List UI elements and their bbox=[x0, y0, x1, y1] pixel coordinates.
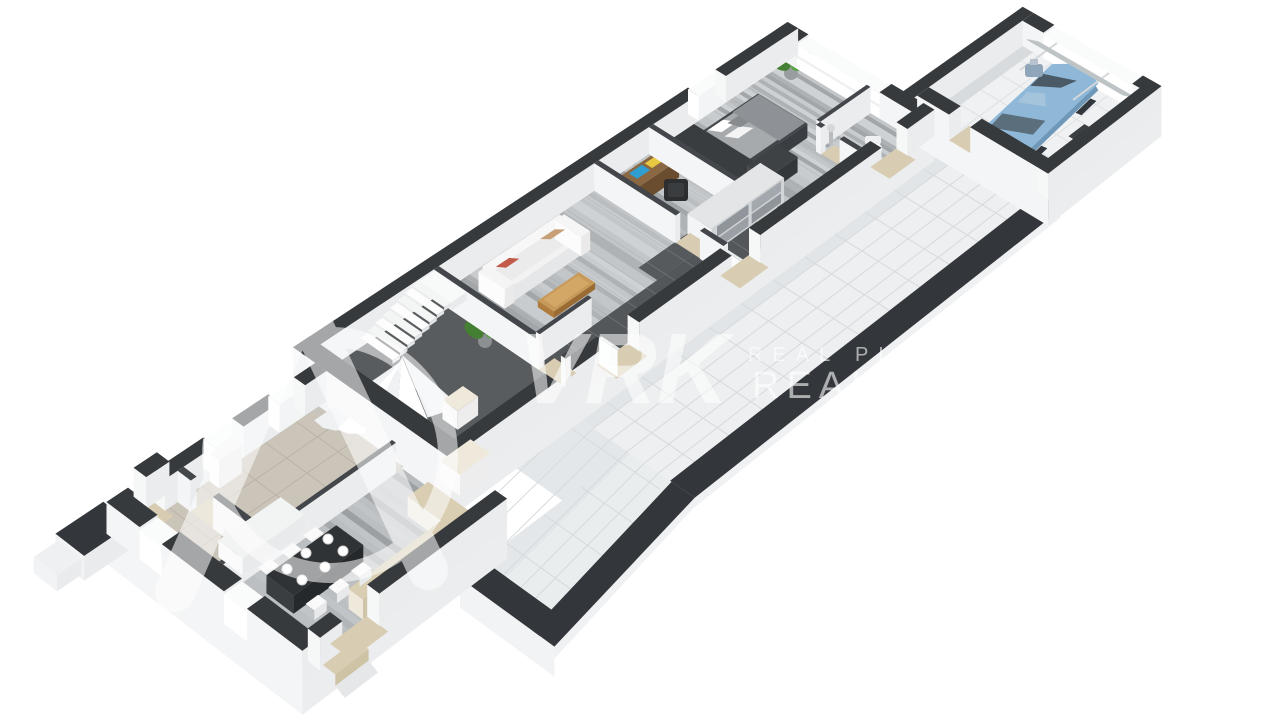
svg-text:REAL PLUS: REAL PLUS bbox=[748, 344, 947, 366]
svg-text:VRK: VRK bbox=[518, 313, 736, 425]
svg-text:REALITY: REALITY bbox=[752, 365, 959, 407]
